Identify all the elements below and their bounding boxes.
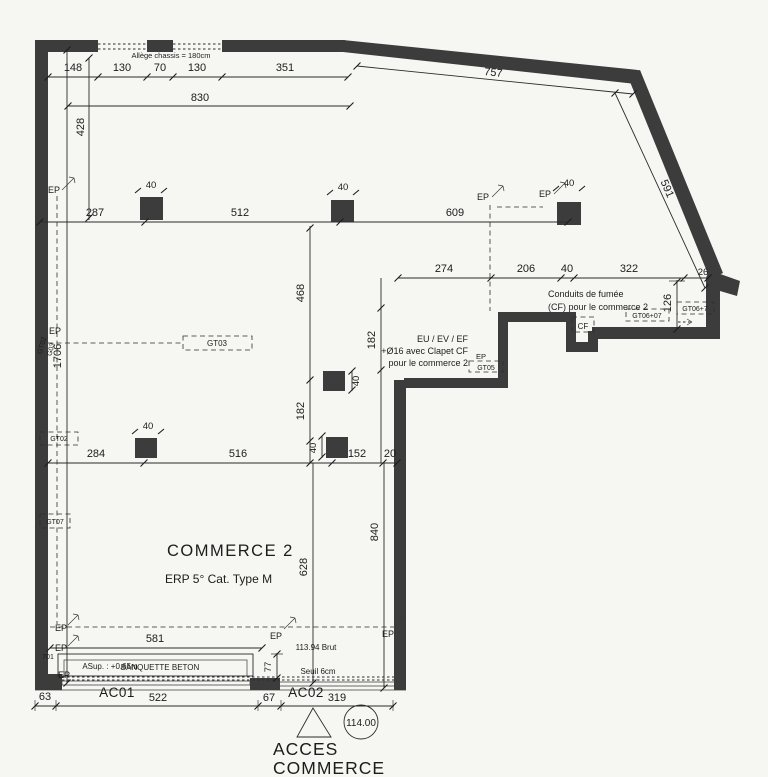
gt06-07-label: GT06+07	[632, 313, 661, 320]
dim-126: 126	[662, 294, 674, 312]
ep-dashed-lines-center	[490, 205, 543, 311]
ep-label: EP	[539, 189, 551, 199]
seuil-note: Seuil 6cm	[300, 667, 335, 676]
gt06-7-label: GT06+7	[682, 306, 708, 313]
dim-lines-diagonal	[357, 66, 705, 288]
ep-label: EP	[49, 326, 61, 336]
wall-mid-horizontal	[592, 327, 720, 339]
column	[135, 438, 157, 458]
ep-label: EP	[55, 623, 67, 633]
dim-40-row: 40	[561, 263, 573, 275]
dim-40-col4: 40	[351, 376, 362, 387]
dim-ticks-horizontal	[32, 74, 712, 710]
dim-628: 628	[298, 558, 310, 576]
duct-labels: EP EP EP EP EP EP EP EP EP EP GT03 GT02 …	[37, 185, 708, 680]
annotation-labels: Allège chassis = 180cm Conduits de fumée…	[82, 51, 648, 777]
dim-757: 757	[484, 66, 504, 80]
dim-274: 274	[435, 263, 453, 275]
floor-plan-drawing: 148 130 70 130 351 830 428 757 591 287 5…	[0, 0, 768, 777]
dim-40-col2: 40	[338, 182, 349, 193]
dim-830: 830	[191, 92, 209, 104]
dim-284: 284	[87, 448, 105, 460]
gt07-label: GT07	[46, 519, 64, 526]
gt02-label: GT02	[50, 436, 68, 443]
access-triangle	[297, 708, 331, 737]
room-title: COMMERCE 2	[167, 542, 294, 560]
room-subtitle: ERP 5° Cat. Type M	[165, 572, 272, 586]
dim-428: 428	[75, 118, 87, 136]
dim-70: 70	[154, 62, 166, 74]
dim-148: 148	[64, 62, 82, 74]
dim-182-right: 182	[366, 331, 378, 349]
door-ac02: AC02	[288, 685, 324, 700]
dim-ticks-vertical	[64, 47, 709, 692]
dim-40-col1: 40	[146, 180, 157, 191]
ep-label: EP	[270, 631, 282, 641]
dim-322: 322	[620, 263, 638, 275]
column	[326, 437, 348, 458]
brut-note: 113.94 Brut	[296, 643, 338, 652]
dim-130b: 130	[188, 62, 206, 74]
dim-512: 512	[231, 207, 249, 219]
wall-lower-horizontal	[404, 378, 508, 388]
wall-right-diagonal	[626, 70, 723, 279]
access-label-line1: ACCES	[273, 739, 338, 759]
dim-63: 63	[39, 691, 51, 703]
allege-note: Allège chassis = 180cm	[132, 51, 211, 60]
wall-bump-top	[498, 312, 576, 322]
wall-right-vertical	[394, 380, 406, 690]
column	[323, 371, 345, 391]
dim-67: 67	[263, 692, 275, 704]
ep-arrow	[68, 635, 79, 646]
dim-522: 522	[149, 692, 167, 704]
ep-label: EP	[477, 192, 489, 202]
dim-319: 319	[328, 692, 346, 704]
columns	[135, 197, 581, 458]
dim-40-col6: 40	[308, 443, 319, 454]
dim-206: 206	[517, 263, 535, 275]
wall-top-seg2	[222, 40, 345, 52]
cf-label: CF	[578, 322, 589, 331]
dim-840: 840	[369, 523, 381, 541]
dim-609: 609	[446, 207, 464, 219]
dimension-labels: 148 130 70 130 351 830 428 757 591 287 5…	[39, 62, 708, 704]
duct-markers	[40, 196, 714, 624]
dim-516: 516	[229, 448, 247, 460]
evac-note-line3: pour le commerce 2	[388, 358, 468, 368]
gt03-label: GT03	[207, 339, 228, 348]
dim-581: 581	[146, 633, 164, 645]
ep-label: EP	[48, 185, 60, 195]
gt05-label: GT05	[477, 365, 495, 372]
evac-note-line2: +Ø16 avec Clapet CF	[381, 346, 468, 356]
ep-arrow	[492, 185, 504, 197]
dim-130a: 130	[113, 62, 131, 74]
access-label-line2: COMMERCE	[273, 758, 385, 777]
dim-287: 287	[86, 207, 104, 219]
ep-label: EP	[58, 670, 70, 680]
shopfront	[35, 627, 406, 690]
dim-77: 77	[263, 662, 274, 673]
column	[140, 197, 163, 220]
window-2	[173, 44, 222, 49]
window-1	[98, 44, 147, 49]
shopfront-ac01-glazing	[62, 681, 250, 685]
wall-bump-left	[498, 312, 508, 388]
ep-arrow	[62, 177, 75, 190]
dim-182-left: 182	[295, 402, 307, 420]
dim-lines-horizontal	[35, 77, 708, 706]
floor-plan-page: 148 130 70 130 351 830 428 757 591 287 5…	[0, 0, 768, 777]
wall-left	[35, 40, 48, 690]
dim-152: 152	[348, 448, 366, 460]
ep-label-gt05: EP	[476, 352, 486, 361]
dim-26: 26	[698, 267, 709, 278]
evac-note-line1: EU / EV / EF	[417, 334, 469, 344]
threshold-dashed	[62, 677, 394, 680]
g01-label: 701	[42, 654, 54, 661]
ep-label: EP	[382, 629, 394, 639]
column	[331, 200, 354, 222]
level-value: 114.00	[346, 718, 376, 729]
conduits-note-line2: (CF) pour le commerce 2	[548, 302, 648, 312]
ep-label: EP	[55, 643, 67, 653]
dim-351: 351	[276, 62, 294, 74]
door-ac01: AC01	[99, 685, 135, 700]
dim-468: 468	[295, 284, 307, 302]
banquette-note: BANQUETTE BETON	[121, 663, 200, 672]
dim-20: 20	[384, 448, 396, 460]
conduits-note-line1: Conduits de fumée	[548, 289, 624, 299]
dim-lines-vertical	[67, 50, 677, 688]
ep-arrow	[68, 614, 79, 625]
dimension-lines	[32, 47, 712, 712]
dim-40-col3: 40	[564, 178, 575, 189]
dim-40-col5: 40	[143, 421, 154, 432]
